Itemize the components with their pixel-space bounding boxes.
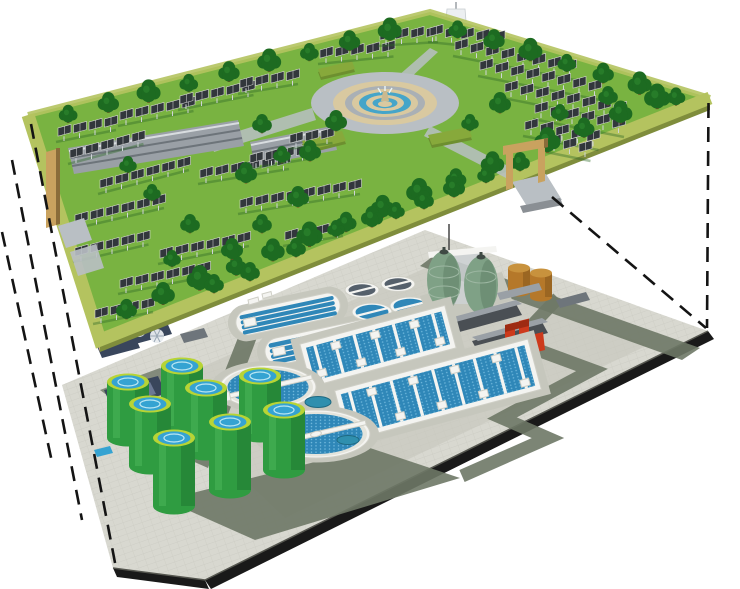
tree-foliage-highlight [525, 44, 532, 51]
tree-foliage-highlight [392, 206, 397, 211]
tree-foliage-highlight [292, 243, 297, 249]
egg-digester-2-cap [477, 255, 486, 260]
tree-foliage-highlight [672, 92, 677, 98]
tree-foliage-highlight [104, 97, 110, 104]
tree-foliage-highlight [224, 67, 230, 74]
egg-digester-2-shade [480, 260, 496, 312]
tree-foliage-highlight [293, 192, 299, 199]
tree-foliage-highlight [453, 25, 458, 31]
tree-foliage-highlight [466, 118, 471, 123]
cutaway-illustration [0, 0, 740, 589]
tree-foliage-highlight [304, 228, 311, 236]
tank-body-highlight [215, 422, 222, 490]
tank-body-highlight [269, 410, 276, 470]
tree-foliage-highlight [232, 261, 238, 267]
tree-foliage-highlight [651, 90, 658, 98]
tree-foliage-highlight [413, 185, 420, 193]
tree-foliage-highlight [158, 288, 164, 295]
tree-foliage-highlight [122, 304, 128, 310]
tree-foliage-highlight [345, 36, 351, 43]
scene-canvas [0, 0, 740, 589]
projection-line-left-3 [2, 232, 52, 462]
tree-foliage-highlight [487, 157, 493, 164]
tree-foliage-highlight [64, 110, 69, 116]
tree-foliage-highlight [305, 146, 311, 153]
tree-foliage-highlight [556, 108, 561, 113]
tank-body-highlight [159, 438, 166, 506]
projection-line-right-vertical [707, 103, 709, 328]
tree-foliage-highlight [516, 157, 521, 163]
tree-foliage-highlight [264, 55, 271, 62]
green-storage-tank [209, 414, 251, 499]
tree-foliage-highlight [246, 267, 251, 273]
tree-foliage-highlight [168, 254, 173, 259]
fuel-tank-1-top [508, 264, 530, 273]
tree-foliage-highlight [210, 279, 215, 285]
tree-foliage-highlight [377, 201, 383, 208]
tree-foliage-highlight [367, 212, 373, 219]
tree-foliage-highlight [449, 182, 455, 189]
tree-foliage-highlight [194, 272, 201, 280]
tree-foliage-highlight [268, 244, 274, 251]
fuel-tank-2-top [530, 269, 552, 278]
tree-foliage-highlight [579, 123, 585, 129]
tank-body-highlight [113, 382, 120, 438]
tree-foliage-highlight [332, 224, 337, 229]
tree-foliage-highlight [258, 219, 263, 225]
tree-foliage-highlight [598, 68, 604, 75]
tank-body-shade [237, 422, 251, 490]
tank-body-shade [181, 438, 195, 506]
tank-body-highlight [135, 404, 142, 466]
tree-foliage-highlight [186, 219, 191, 225]
tree-foliage-highlight [305, 48, 310, 54]
tree-foliage-highlight [185, 79, 190, 85]
tree-foliage-highlight [148, 188, 153, 193]
tree-foliage-highlight [341, 217, 347, 223]
green-storage-tank [153, 430, 195, 515]
tree-foliage-highlight [615, 106, 621, 113]
ground-tank-2 [337, 436, 359, 445]
tree-foliage-highlight [420, 195, 425, 201]
tree-foliage-highlight [331, 116, 337, 123]
tree-foliage-highlight [258, 119, 263, 125]
tree-foliage-highlight [384, 24, 391, 31]
green-storage-tank [263, 402, 305, 479]
tree-foliage-highlight [227, 244, 233, 251]
tank-body-shade [291, 410, 305, 470]
tree-foliage-highlight [489, 35, 495, 42]
ground-tank-1 [305, 397, 331, 408]
tree-foliage-highlight [241, 168, 247, 175]
tree-foliage-highlight [124, 160, 129, 165]
tree-foliage-highlight [143, 85, 150, 92]
tree-foliage-highlight [604, 91, 609, 97]
tree-foliage-highlight [495, 98, 501, 105]
tree-foliage-highlight [563, 59, 568, 65]
tree-foliage-highlight [278, 150, 283, 155]
gate-lintel-shade [544, 138, 548, 148]
tree-foliage-highlight [482, 170, 487, 175]
egg-digester-1-cap [440, 250, 449, 255]
side-gate-post-shade [56, 148, 60, 225]
tree-foliage-highlight [634, 78, 641, 85]
fountain-island [378, 101, 392, 107]
